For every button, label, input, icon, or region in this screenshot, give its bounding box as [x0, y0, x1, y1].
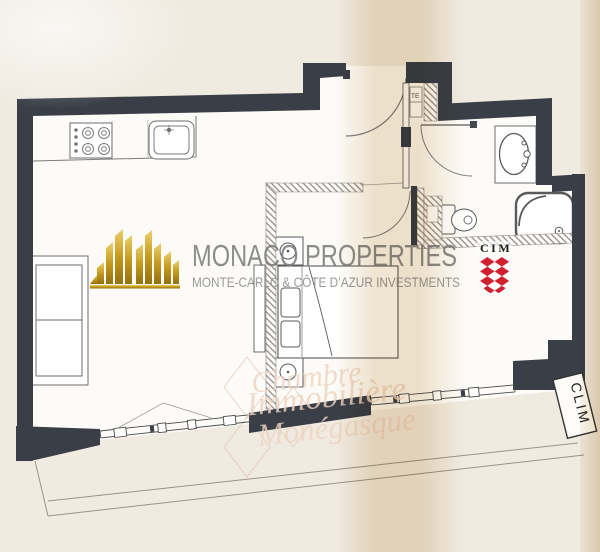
- wall-right-step: [536, 98, 552, 185]
- wall-wc-left: [411, 186, 417, 245]
- bedroom-wall-top: [266, 183, 363, 192]
- closet-wall: [424, 83, 437, 121]
- cim-label: CIM: [480, 241, 512, 255]
- scanned-floor-plan-page: TE: [0, 0, 600, 552]
- terrace-front-edge-outer: [48, 455, 584, 516]
- shaft-box: [427, 206, 438, 222]
- bathroom-sink-icon: [495, 126, 536, 183]
- pillow: [281, 321, 300, 347]
- stove-icon: [70, 123, 112, 158]
- wall-closet-top: [406, 62, 452, 83]
- wc-wall: [417, 188, 424, 245]
- floor-plan: TE: [0, 0, 600, 552]
- kitchen-sink-icon: [149, 121, 194, 159]
- ac-unit: CLIM: [553, 373, 597, 438]
- brand-logo: MONACO PROPERTIES MONTE-CARLO & CÔTE D’A…: [90, 229, 460, 290]
- terrace: [35, 443, 584, 516]
- closet-label: TE: [411, 93, 420, 100]
- door-hinge: [470, 121, 477, 128]
- wall-bottom-left: [16, 426, 100, 461]
- door-hinge: [343, 70, 350, 79]
- terrace-side-edge: [35, 461, 48, 516]
- pillow: [281, 288, 300, 317]
- terrace-front-edge-inner: [48, 443, 578, 501]
- wall-left: [17, 99, 33, 461]
- brand-title: MONACO PROPERTIES: [192, 238, 457, 273]
- door-jamb: [401, 127, 411, 147]
- brand-subtitle: MONTE-CARLO & CÔTE D’AZUR INVESTMENTS: [192, 274, 460, 290]
- wall-top: [17, 63, 346, 116]
